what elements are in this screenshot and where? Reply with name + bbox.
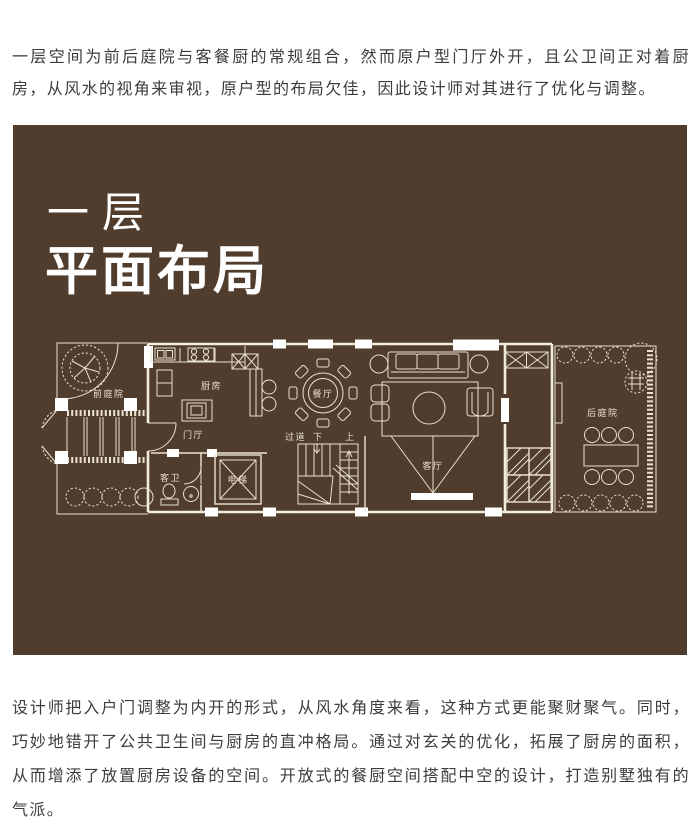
kitchen-area: 厨房 [151,346,276,421]
intro-paragraph: 一层空间为前后庭院与客餐厨的常规组合，然而原户型门厅外开，且公卫间正对着厨房，从… [12,42,690,106]
label-back-yard: 后庭院 [587,407,619,418]
dining-area: 餐厅 [289,359,357,427]
living-room-area: 客厅 [370,352,493,500]
floorplan-image: 前庭院 [39,333,659,525]
guest-bath-area: 客卫 [151,449,267,512]
label-living: 客厅 [422,460,443,471]
building-walls [144,340,552,517]
floorplan-panel: 一层 平面布局 [13,125,687,655]
floorplan-svg: 前庭院 [39,333,659,525]
label-front-yard: 前庭院 [93,388,125,399]
label-foyer: 门厅 [183,429,204,440]
corridor-stairs-area: 过道 下 上 [285,431,365,512]
label-stairs-down: 下 [313,432,324,442]
elevator-area: 电梯 [215,455,261,504]
deck-area [505,352,551,502]
label-elevator: 电梯 [227,474,248,485]
article-page: { "colors": { "panel_bg": "#503d2e", "pl… [0,0,700,784]
label-dining: 餐厅 [312,388,333,399]
panel-title-line2: 平面布局 [45,229,269,305]
outro-paragraph: 设计师把入户门调整为内开的形式，从风水角度来看，这种方式更能聚财聚气。同时，巧妙… [12,692,690,828]
front-courtyard-area: 前庭院 [42,343,153,514]
back-courtyard-area: 后庭院 [555,343,657,512]
label-stairs-up: 上 [345,432,356,442]
label-corridor: 过道 [285,431,306,442]
label-guest-bath: 客卫 [160,472,181,483]
label-kitchen: 厨房 [201,380,222,391]
foyer-area: 门厅 [148,423,204,451]
